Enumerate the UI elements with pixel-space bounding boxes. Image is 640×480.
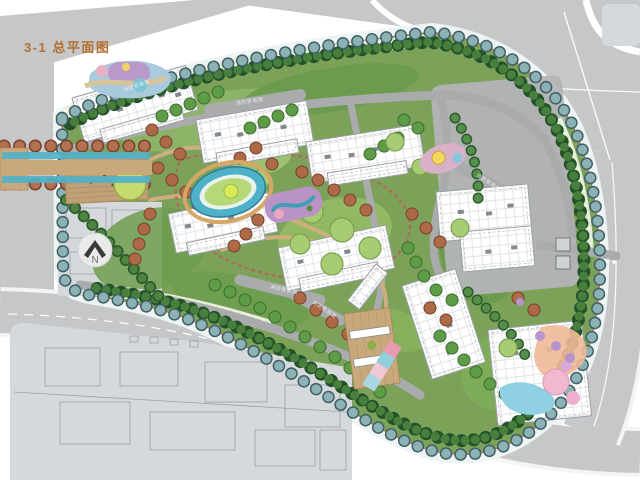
tree-orange xyxy=(129,253,141,265)
tree-green xyxy=(254,302,266,314)
tree-orange xyxy=(360,204,372,216)
tree-orange xyxy=(344,194,356,206)
tree-green xyxy=(198,92,210,104)
tree-orange xyxy=(174,148,186,160)
tree-green xyxy=(156,110,168,122)
north-arrow: N xyxy=(78,233,112,267)
tree-green xyxy=(410,256,422,268)
tree-green xyxy=(212,86,224,98)
tree-orange xyxy=(296,166,308,178)
tree-green xyxy=(244,122,256,134)
tree-orange xyxy=(406,208,418,220)
tree-orange xyxy=(328,184,340,196)
tree-green xyxy=(170,104,182,116)
tree-orange xyxy=(166,174,178,186)
tree-green xyxy=(209,279,221,291)
tree-orange xyxy=(312,174,324,186)
tree-green xyxy=(412,122,424,134)
tree-green xyxy=(184,98,196,110)
tree-green xyxy=(402,242,414,254)
tree-green xyxy=(430,284,442,296)
tree-green xyxy=(272,110,284,122)
tree-orange xyxy=(160,136,172,148)
tree-green xyxy=(484,378,496,390)
tree-green xyxy=(446,294,458,306)
tree-green xyxy=(458,354,470,366)
tree-orange xyxy=(240,228,252,240)
tree-orange xyxy=(434,236,446,248)
tree-orange xyxy=(133,238,145,250)
tree-orange xyxy=(424,302,436,314)
tree-canopy xyxy=(321,253,343,275)
tree-orange xyxy=(228,240,240,252)
tree-green xyxy=(398,114,410,126)
tree-canopy xyxy=(451,219,469,237)
tree-green xyxy=(446,342,458,354)
tree-green xyxy=(269,311,281,323)
tree-orange xyxy=(144,208,156,220)
north-label: N xyxy=(92,255,99,266)
tree-orange xyxy=(152,162,164,174)
tree-canopy xyxy=(499,339,517,357)
tree-orange xyxy=(138,223,150,235)
tree-canopy xyxy=(290,234,310,254)
tree-green xyxy=(239,294,251,306)
tree-orange xyxy=(528,304,540,316)
tree-green xyxy=(299,331,311,343)
tree-green xyxy=(329,351,341,363)
tree-green xyxy=(418,270,430,282)
tree-green xyxy=(434,330,446,342)
tree-green xyxy=(224,286,236,298)
tree-green xyxy=(284,321,296,333)
tree-green xyxy=(364,148,376,160)
tree-orange xyxy=(146,124,158,136)
tree-green xyxy=(258,116,270,128)
tree-green xyxy=(286,104,298,116)
master-plan-canvas: N 3-1 总平面图 消防登高面 消防登高面 消防登高面 消防登高面 消防登高面 xyxy=(0,0,640,480)
tree-canopy xyxy=(330,218,354,242)
tree-canopy xyxy=(359,237,381,259)
tree-orange xyxy=(420,222,432,234)
tree-green xyxy=(314,341,326,353)
tree-canopy xyxy=(386,133,404,151)
tree-green xyxy=(470,366,482,378)
tree-orange xyxy=(266,158,278,170)
context-corner-block xyxy=(602,4,640,46)
master-plan-page: N 3-1 总平面图 消防登高面 消防登高面 消防登高面 消防登高面 消防登高面 xyxy=(0,0,640,480)
tree-orange xyxy=(252,214,264,226)
page-title: 3-1 总平面图 xyxy=(24,40,110,55)
tree-orange xyxy=(440,314,452,326)
tree-orange xyxy=(250,142,262,154)
